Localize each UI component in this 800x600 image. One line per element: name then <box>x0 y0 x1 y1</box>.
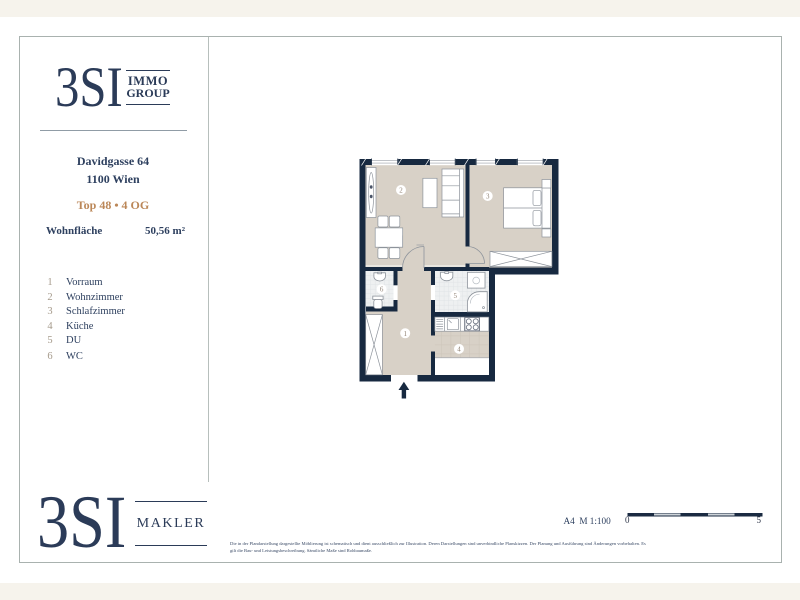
svg-text:4: 4 <box>457 345 461 353</box>
svg-text:1: 1 <box>403 330 407 338</box>
svg-text:5: 5 <box>453 292 457 300</box>
svg-text:6: 6 <box>380 286 384 294</box>
svg-text:3: 3 <box>486 193 490 201</box>
svg-text:2: 2 <box>399 187 403 195</box>
